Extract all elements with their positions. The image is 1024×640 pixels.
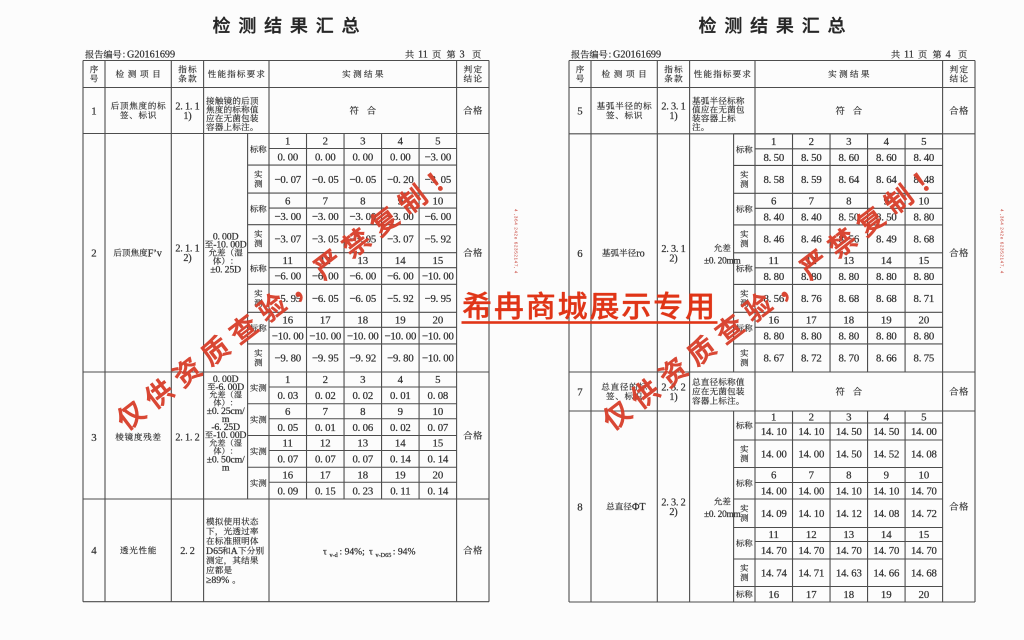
svg-text:8. 72: 8. 72 (801, 353, 822, 365)
svg-text:12: 12 (320, 438, 331, 450)
svg-text:14. 10: 14. 10 (798, 508, 824, 520)
svg-text:8. 58: 8. 58 (763, 174, 784, 186)
svg-text:3: 3 (360, 136, 365, 148)
svg-text:13: 13 (357, 255, 368, 267)
svg-text:1): 1) (669, 111, 677, 122)
svg-text:G20161699: G20161699 (127, 50, 175, 61)
svg-text:D65: D65 (206, 546, 223, 557)
svg-text:1: 1 (285, 136, 290, 148)
svg-text:8. 60: 8. 60 (876, 152, 897, 164)
svg-text:15: 15 (432, 255, 443, 267)
svg-text:14. 70: 14. 70 (911, 545, 937, 557)
svg-text:8. 50: 8. 50 (801, 152, 822, 164)
svg-text:18: 18 (843, 315, 854, 327)
svg-text:τ: τ (369, 546, 373, 557)
svg-text:2: 2 (323, 136, 328, 148)
svg-text:14. 52: 14. 52 (873, 448, 899, 460)
svg-text:: 94%;: : 94%; (340, 546, 365, 557)
svg-text:−5. 92: −5. 92 (387, 293, 413, 305)
svg-text:−10. 00: −10. 00 (422, 271, 454, 283)
svg-text:8. 50: 8. 50 (763, 152, 784, 164)
svg-text:2: 2 (91, 248, 96, 260)
svg-text:14. 00: 14. 00 (761, 485, 787, 497)
svg-text:14. 00: 14. 00 (911, 426, 937, 438)
svg-text:3: 3 (91, 432, 96, 444)
svg-text:14. 68: 14. 68 (911, 567, 937, 579)
svg-text:5: 5 (435, 136, 440, 148)
svg-text:2. 2: 2. 2 (180, 546, 195, 557)
svg-text:9: 9 (398, 406, 403, 418)
svg-text:0. 23: 0. 23 (352, 485, 373, 497)
svg-text:16: 16 (768, 589, 779, 601)
svg-text:17: 17 (320, 469, 331, 481)
svg-text:2): 2) (183, 253, 191, 264)
svg-text:−6. 00: −6. 00 (425, 211, 451, 223)
svg-text:−0. 07: −0. 07 (275, 174, 302, 186)
svg-text:−6. 00: −6. 00 (387, 271, 413, 283)
svg-text:2): 2) (669, 507, 677, 518)
svg-text:0. 00: 0. 00 (315, 152, 336, 164)
svg-text:14: 14 (881, 255, 892, 267)
svg-text:4: 4 (946, 50, 951, 61)
svg-text:8. 80: 8. 80 (914, 211, 935, 223)
svg-text:0. 15: 0. 15 (315, 485, 336, 497)
svg-text:−6. 05: −6. 05 (350, 293, 376, 305)
svg-text:−0. 05: −0. 05 (350, 174, 376, 186)
svg-text:8. 80: 8. 80 (838, 330, 859, 342)
svg-text:±0. 20mm: ±0. 20mm (704, 257, 742, 267)
svg-text:8: 8 (846, 470, 851, 482)
svg-text:11: 11 (769, 255, 779, 267)
svg-text:8. 70: 8. 70 (838, 353, 859, 365)
svg-text:−9. 80: −9. 80 (387, 353, 413, 365)
svg-text:8: 8 (846, 196, 851, 208)
svg-text:19: 19 (881, 589, 892, 601)
svg-text:14. 70: 14. 70 (761, 545, 787, 557)
svg-text:2: 2 (323, 374, 328, 386)
svg-text:14. 08: 14. 08 (873, 508, 899, 520)
svg-text:2. 1. 2: 2. 1. 2 (175, 433, 199, 444)
svg-text:8. 80: 8. 80 (876, 271, 897, 283)
svg-text:14. 71: 14. 71 (798, 567, 824, 579)
svg-text:0. 14: 0. 14 (428, 485, 449, 497)
svg-text:8. 75: 8. 75 (914, 353, 935, 365)
svg-text:8. 59: 8. 59 (801, 174, 822, 186)
svg-text:8. 80: 8. 80 (914, 330, 935, 342)
svg-text:14. 12: 14. 12 (836, 508, 862, 520)
svg-text:5: 5 (435, 374, 440, 386)
svg-text:0. 03: 0. 03 (277, 390, 298, 402)
svg-text:14. 70: 14. 70 (798, 545, 824, 557)
svg-text:14. 00: 14. 00 (798, 448, 824, 460)
svg-text:2): 2) (669, 253, 677, 264)
svg-text:0. 01: 0. 01 (315, 422, 336, 434)
svg-text:4 ,364 242e 62352147, 4: 4 ,364 242e 62352147, 4 (1000, 209, 1005, 274)
svg-text:6: 6 (771, 470, 777, 482)
svg-text:−9. 95: −9. 95 (312, 353, 338, 365)
svg-text:18: 18 (357, 469, 368, 481)
svg-text:−3. 07: −3. 07 (387, 233, 414, 245)
svg-text:7: 7 (323, 406, 329, 418)
svg-text:≥89%: ≥89% (206, 575, 229, 586)
svg-text:8. 40: 8. 40 (801, 211, 822, 223)
svg-text:8. 46: 8. 46 (801, 234, 822, 246)
svg-text:8. 68: 8. 68 (914, 234, 935, 246)
svg-text:8: 8 (360, 406, 365, 418)
svg-text:v-d: v-d (330, 552, 339, 559)
svg-text:7: 7 (809, 470, 815, 482)
svg-text:−3. 00: −3. 00 (312, 211, 338, 223)
svg-text:14. 00: 14. 00 (761, 448, 787, 460)
svg-text:3: 3 (846, 136, 851, 148)
svg-text:8. 80: 8. 80 (763, 330, 784, 342)
svg-text:F’v: F’v (148, 248, 163, 259)
svg-text:A: A (231, 546, 238, 557)
svg-text:1: 1 (91, 105, 96, 117)
svg-text:16: 16 (282, 315, 293, 327)
svg-text:8. 46: 8. 46 (763, 234, 784, 246)
svg-text:14. 00: 14. 00 (798, 485, 824, 497)
svg-text:14. 72: 14. 72 (911, 508, 937, 520)
svg-text:20: 20 (918, 315, 929, 327)
svg-text:1: 1 (771, 136, 776, 148)
svg-text:4: 4 (884, 136, 890, 148)
svg-text:8. 40: 8. 40 (914, 152, 935, 164)
svg-text:14. 09: 14. 09 (761, 508, 787, 520)
svg-text:15: 15 (918, 255, 929, 267)
svg-text:14: 14 (395, 438, 406, 450)
svg-text:0. 02: 0. 02 (315, 390, 336, 402)
svg-text:16: 16 (768, 315, 779, 327)
svg-text:8. 80: 8. 80 (763, 271, 784, 283)
svg-text:1): 1) (183, 111, 191, 122)
svg-text:7: 7 (577, 386, 583, 398)
svg-text:τ: τ (323, 546, 327, 557)
svg-text:−6. 00: −6. 00 (350, 271, 376, 283)
svg-text:−10. 00: −10. 00 (309, 330, 341, 342)
svg-text:0. 05: 0. 05 (277, 422, 298, 434)
svg-text:3: 3 (360, 374, 365, 386)
svg-text:0. 00: 0. 00 (390, 152, 411, 164)
svg-text:8. 76: 8. 76 (801, 293, 822, 305)
svg-text:4: 4 (884, 412, 890, 424)
svg-text:4: 4 (91, 545, 97, 557)
svg-text:14. 50: 14. 50 (873, 426, 899, 438)
svg-text:1): 1) (669, 392, 677, 403)
svg-text:8. 80: 8. 80 (838, 271, 859, 283)
svg-text:−3. 00: −3. 00 (275, 211, 301, 223)
svg-text:G20161699: G20161699 (613, 50, 661, 61)
svg-text:10: 10 (918, 196, 929, 208)
svg-text:6: 6 (577, 248, 583, 260)
svg-text:0. 11: 0. 11 (390, 485, 410, 497)
svg-text:2: 2 (809, 412, 814, 424)
svg-text:-10. 00D: -10. 00D (213, 430, 246, 441)
svg-text:0. 01: 0. 01 (390, 390, 411, 402)
svg-text:8. 60: 8. 60 (838, 152, 859, 164)
svg-text:−0. 05: −0. 05 (312, 174, 338, 186)
svg-text:4: 4 (398, 374, 404, 386)
svg-text:−6. 00: −6. 00 (275, 271, 301, 283)
svg-text:5: 5 (921, 412, 926, 424)
svg-text:13: 13 (843, 255, 854, 267)
svg-text:−10. 00: −10. 00 (347, 330, 379, 342)
svg-text:17: 17 (320, 315, 331, 327)
svg-text:14. 74: 14. 74 (761, 567, 788, 579)
svg-text:2: 2 (809, 136, 814, 148)
svg-text:20: 20 (432, 469, 443, 481)
svg-text:8: 8 (577, 501, 582, 513)
svg-text:14: 14 (395, 255, 406, 267)
svg-text:12: 12 (806, 529, 817, 541)
svg-text:−10. 00: −10. 00 (384, 330, 416, 342)
svg-text:8. 40: 8. 40 (763, 211, 784, 223)
svg-text:0. 14: 0. 14 (390, 454, 411, 466)
svg-text:0. 07: 0. 07 (277, 454, 298, 466)
svg-text:13: 13 (843, 529, 854, 541)
svg-text:4: 4 (398, 136, 404, 148)
svg-text:18: 18 (843, 589, 854, 601)
svg-text:−0. 20: −0. 20 (387, 174, 413, 186)
svg-text:15: 15 (918, 529, 929, 541)
svg-text:ro: ro (636, 248, 645, 259)
svg-text:14. 63: 14. 63 (836, 567, 862, 579)
svg-text:8. 68: 8. 68 (876, 293, 897, 305)
svg-text:0. 02: 0. 02 (390, 422, 411, 434)
svg-text:−9. 95: −9. 95 (425, 293, 451, 305)
svg-text:ΦT: ΦT (632, 502, 646, 513)
svg-text:7: 7 (809, 196, 815, 208)
svg-text:8. 71: 8. 71 (914, 293, 935, 305)
svg-text:14. 10: 14. 10 (761, 426, 787, 438)
svg-text:8. 80: 8. 80 (914, 271, 935, 283)
svg-text:10: 10 (918, 470, 929, 482)
svg-text:8. 67: 8. 67 (763, 353, 784, 365)
svg-text:14. 70: 14. 70 (836, 545, 862, 557)
svg-text:10: 10 (432, 406, 443, 418)
svg-text:5: 5 (921, 136, 926, 148)
svg-text:−3. 00: −3. 00 (425, 152, 451, 164)
svg-text:14. 10: 14. 10 (836, 485, 862, 497)
svg-text:20: 20 (432, 315, 443, 327)
svg-text:17: 17 (806, 589, 817, 601)
svg-text:0. 07: 0. 07 (352, 454, 373, 466)
svg-text:8. 49: 8. 49 (876, 234, 897, 246)
svg-text:−9. 92: −9. 92 (350, 353, 376, 365)
svg-text:−10. 00: −10. 00 (422, 353, 454, 365)
svg-text:0. 09: 0. 09 (277, 485, 298, 497)
svg-text:8. 64: 8. 64 (876, 174, 897, 186)
svg-text:13: 13 (357, 438, 368, 450)
svg-text:14: 14 (881, 529, 892, 541)
svg-text:: 94%: : 94% (393, 546, 416, 557)
svg-text:±0. 25D: ±0. 25D (210, 265, 241, 276)
svg-text:14. 08: 14. 08 (911, 448, 937, 460)
svg-text:6: 6 (285, 406, 291, 418)
svg-text:5: 5 (577, 106, 582, 118)
svg-text:17: 17 (806, 315, 817, 327)
svg-text:8: 8 (360, 195, 365, 207)
svg-text:−9. 80: −9. 80 (275, 353, 301, 365)
svg-text:8. 80: 8. 80 (876, 330, 897, 342)
svg-text:11: 11 (904, 50, 914, 61)
svg-text:18: 18 (357, 315, 368, 327)
svg-text:8. 68: 8. 68 (838, 293, 859, 305)
svg-text:14. 70: 14. 70 (873, 545, 899, 557)
svg-text:0. 00: 0. 00 (352, 152, 373, 164)
svg-text:0. 07: 0. 07 (315, 454, 336, 466)
svg-text:11: 11 (283, 255, 293, 267)
svg-text:11: 11 (283, 438, 293, 450)
svg-text:−6. 05: −6. 05 (312, 293, 338, 305)
svg-text:10: 10 (432, 195, 443, 207)
svg-text:1: 1 (771, 412, 776, 424)
svg-text:0. 07: 0. 07 (428, 422, 449, 434)
svg-text:0. 00: 0. 00 (277, 152, 298, 164)
svg-text:−10. 00: −10. 00 (422, 330, 454, 342)
svg-text:−3. 05: −3. 05 (312, 233, 338, 245)
svg-text:1: 1 (285, 374, 290, 386)
svg-text:19: 19 (881, 315, 892, 327)
svg-text:0. 06: 0. 06 (352, 422, 373, 434)
svg-text:14. 70: 14. 70 (911, 485, 937, 497)
svg-text:7: 7 (323, 195, 329, 207)
svg-text:±0. 20mm: ±0. 20mm (704, 510, 742, 520)
svg-text:−10. 00: −10. 00 (272, 330, 304, 342)
svg-text:14. 10: 14. 10 (798, 426, 824, 438)
svg-text:20: 20 (918, 589, 929, 601)
svg-text:8. 64: 8. 64 (838, 174, 859, 186)
svg-text:v-D65: v-D65 (376, 552, 392, 559)
svg-text:6: 6 (285, 195, 291, 207)
svg-text:4 ,364 242e 62352147, 4: 4 ,364 242e 62352147, 4 (514, 209, 519, 274)
svg-text:11: 11 (418, 50, 428, 61)
svg-text:16: 16 (282, 469, 293, 481)
svg-text:11: 11 (769, 529, 779, 541)
svg-text:14. 50: 14. 50 (836, 426, 862, 438)
svg-text:8. 66: 8. 66 (876, 353, 897, 365)
svg-text:14. 10: 14. 10 (873, 485, 899, 497)
svg-text:0. 14: 0. 14 (428, 454, 449, 466)
svg-text:m: m (222, 462, 230, 473)
svg-text:0. 02: 0. 02 (352, 390, 373, 402)
svg-text:14. 50: 14. 50 (836, 448, 862, 460)
svg-text:3: 3 (460, 50, 465, 61)
svg-text:−3. 07: −3. 07 (275, 233, 302, 245)
svg-text:14. 66: 14. 66 (873, 567, 900, 579)
svg-text:3: 3 (846, 412, 851, 424)
svg-text:6: 6 (771, 196, 777, 208)
svg-text:0. 08: 0. 08 (428, 390, 449, 402)
svg-text:15: 15 (432, 438, 443, 450)
svg-text:−5. 92: −5. 92 (425, 233, 451, 245)
svg-text:9: 9 (884, 470, 889, 482)
svg-text:8. 50: 8. 50 (838, 211, 859, 223)
svg-text:19: 19 (395, 315, 406, 327)
svg-text:8. 80: 8. 80 (801, 330, 822, 342)
svg-text:19: 19 (395, 469, 406, 481)
